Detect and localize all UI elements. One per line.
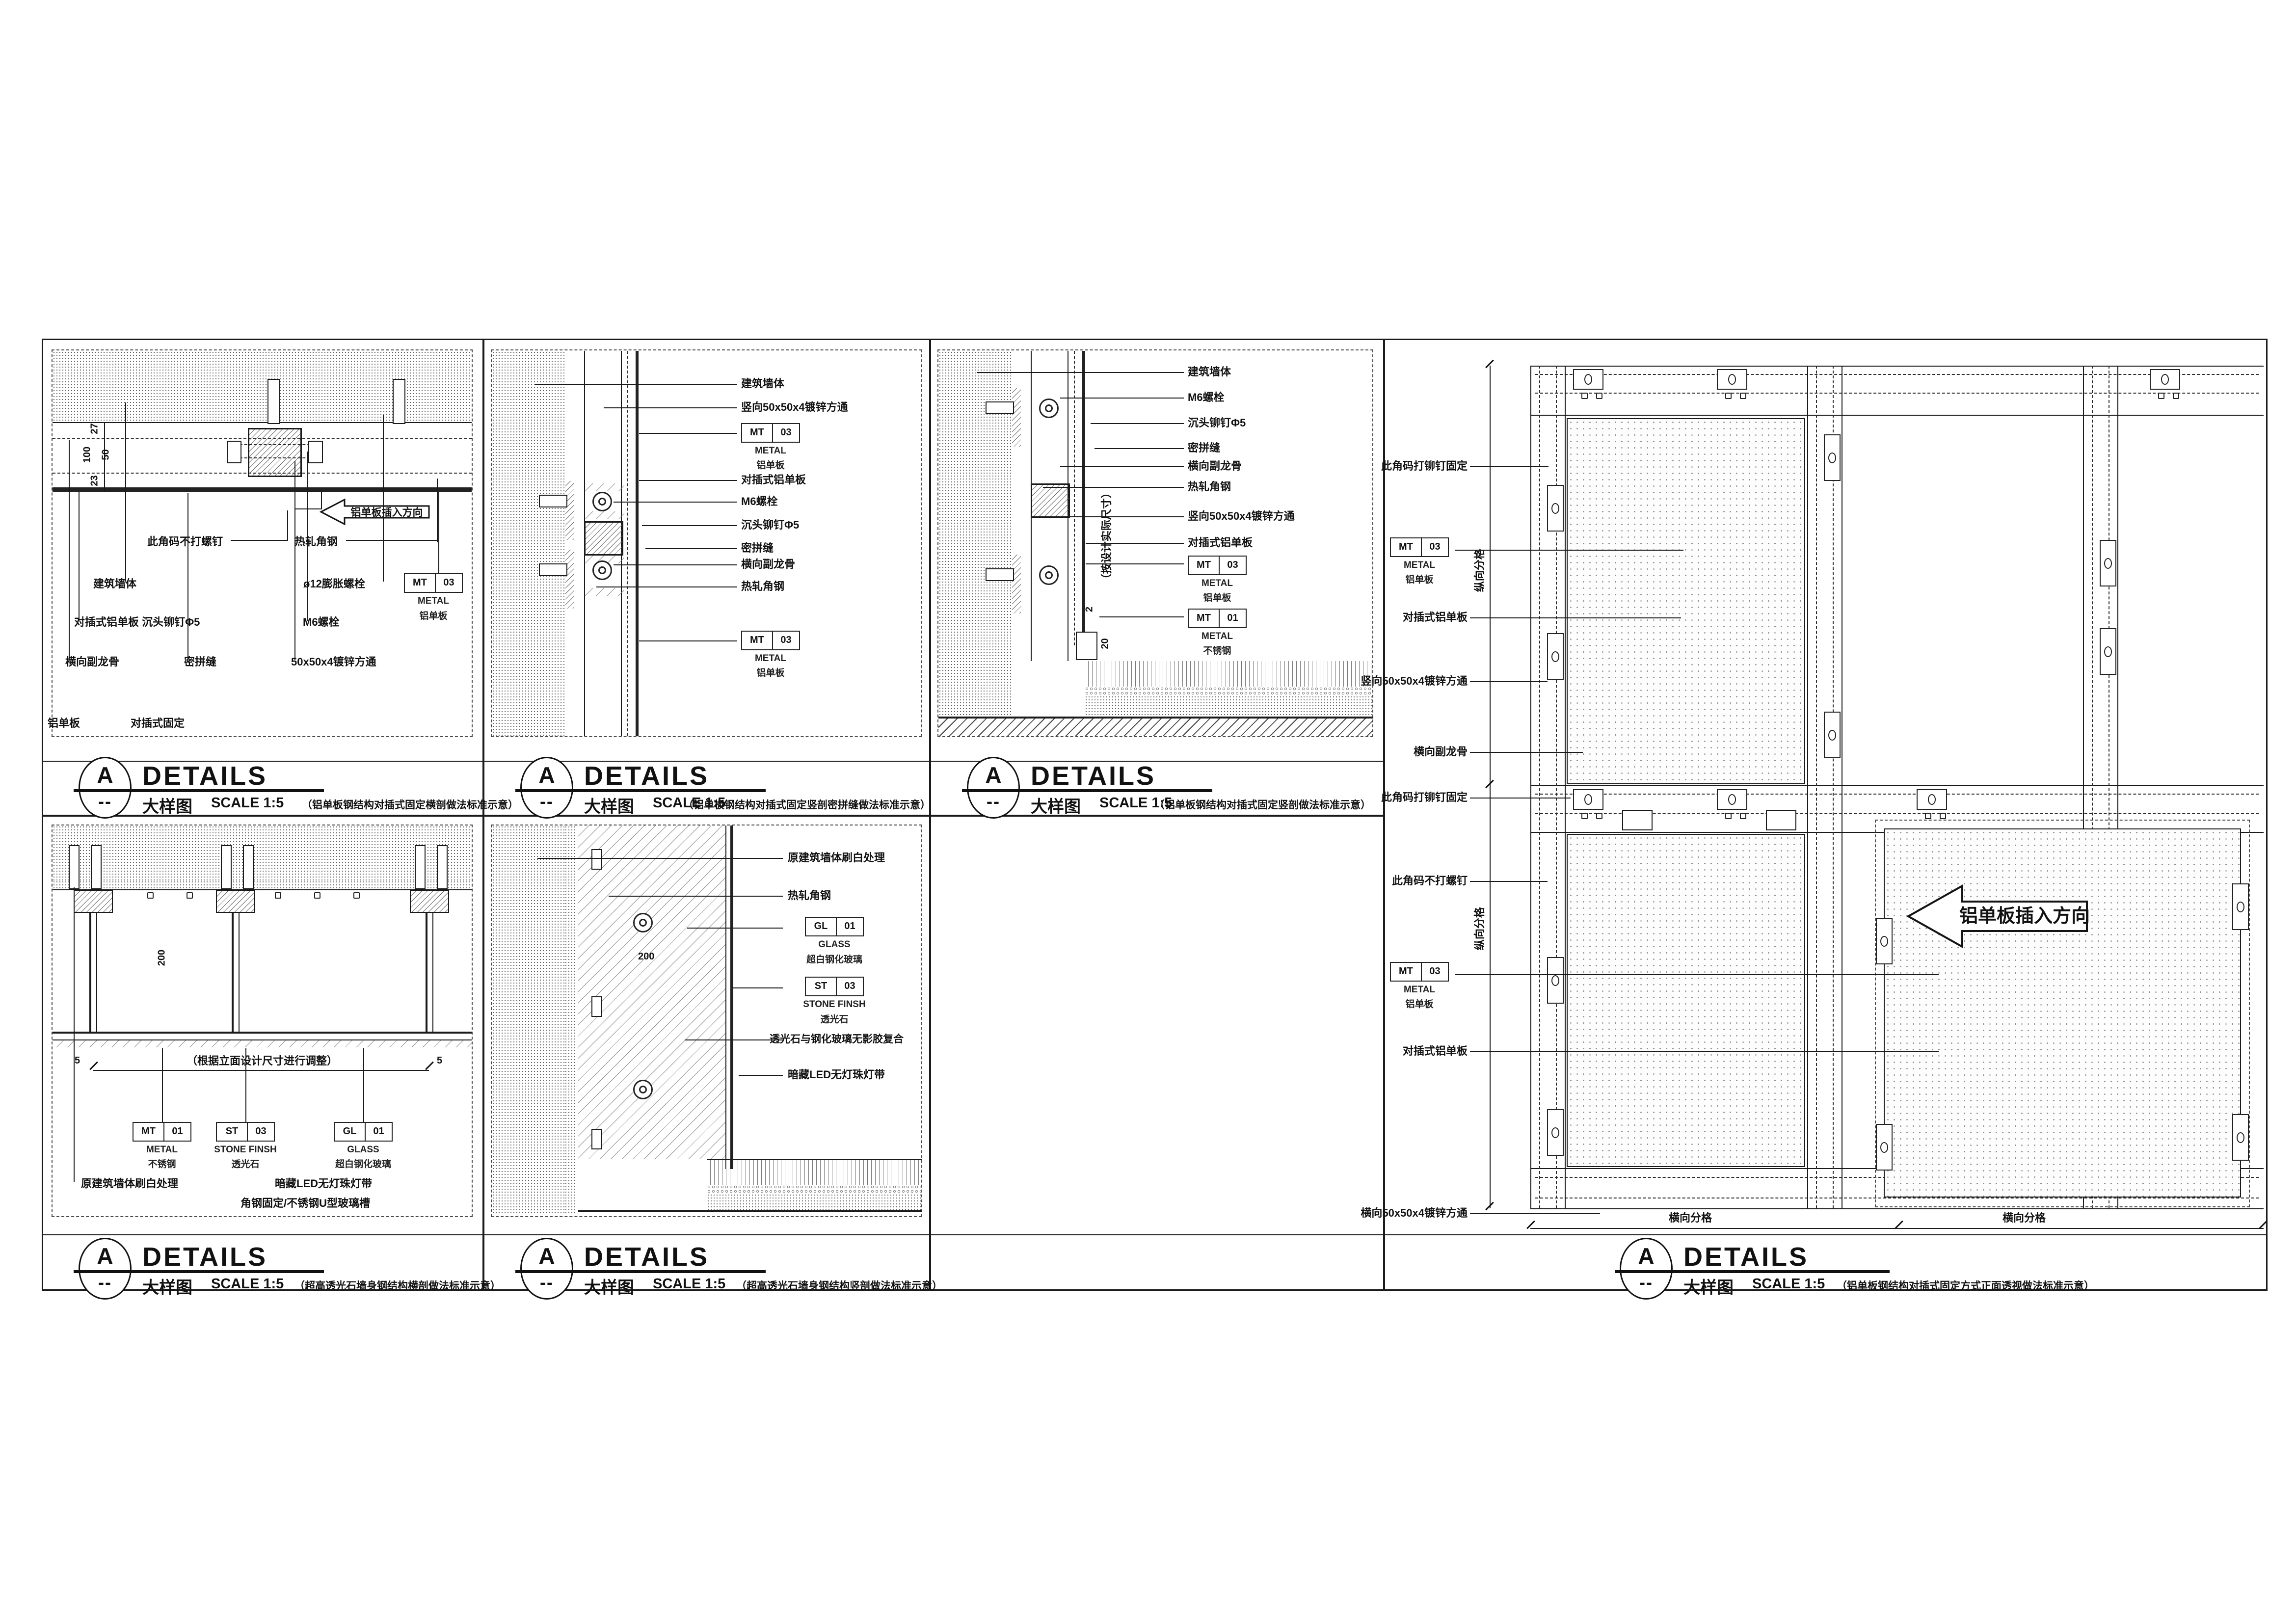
rivet-ring (1551, 975, 1559, 986)
label: 此角码打铆钉固定 (1381, 792, 1468, 803)
girt-line (1530, 366, 2264, 367)
title-details: DETAILS (584, 761, 709, 791)
label: 对插式铝单板 (1188, 537, 1253, 549)
tag-material: METAL (1365, 560, 1473, 571)
rivet-ring (1551, 503, 1559, 514)
anchor-bolt (539, 563, 567, 576)
label: 密拼缝 (1188, 442, 1220, 454)
tag-material-cn: 铝单板 (1163, 590, 1271, 604)
label: 透光石与钢化玻璃无影胶复合 (770, 1034, 904, 1045)
label: 对插式铝单板 (741, 474, 806, 486)
leader-line (639, 640, 737, 641)
tag-material: METAL (717, 446, 825, 456)
screw-head (1725, 813, 1732, 819)
leader-line (609, 896, 783, 897)
glass-fin (426, 913, 427, 1033)
leader-line (1043, 487, 1184, 488)
leader-line (537, 858, 783, 859)
leader-line (79, 492, 80, 621)
leader-line (187, 493, 188, 660)
dim-200: 200 (157, 943, 168, 973)
stone-face (53, 1032, 472, 1034)
tag-number: 03 (837, 978, 863, 995)
tag-code: MT (405, 574, 436, 592)
screw-head (1940, 813, 1946, 819)
title-view: 大样图 (584, 1274, 634, 1298)
tag-number: 01 (164, 1123, 190, 1141)
tag-material: GLASS (309, 1145, 417, 1155)
leader-line (685, 1039, 783, 1040)
tag-material: METAL (1163, 578, 1271, 589)
detail-letter: A (1620, 1243, 1673, 1269)
leader-line (74, 887, 75, 1182)
screw-head (2173, 393, 2179, 399)
clip-fixing (2150, 369, 2180, 390)
label: 横向副龙骨 (741, 559, 795, 570)
bolt-ring (598, 566, 606, 574)
bolt-symbol (633, 913, 653, 932)
line (53, 422, 472, 423)
steel-tube-section (1031, 483, 1070, 518)
rivet-ring (1828, 730, 1836, 741)
bolt-ring (1045, 571, 1053, 579)
leader-line (231, 540, 287, 541)
tag-number: 03 (773, 424, 799, 442)
leader-line (1470, 1051, 1939, 1052)
tag-number: 01 (1220, 610, 1246, 627)
material-tag: MT03 (741, 631, 800, 650)
leader-line (596, 586, 737, 587)
leader-line (69, 440, 70, 661)
label: 横向50x50x4镀锌方通 (1361, 1207, 1468, 1219)
title-details: DETAILS (584, 1242, 709, 1272)
leader-line (645, 548, 737, 549)
bracket-plate (1012, 555, 1021, 613)
clip-fixing (1917, 789, 1947, 810)
tag-code: GL (335, 1123, 366, 1141)
floor-stone-band (707, 1159, 922, 1185)
detail-number: -- (1620, 1272, 1673, 1293)
tag-code: ST (806, 978, 837, 995)
steel-tube-section (248, 428, 302, 477)
girt-line (1530, 785, 2264, 786)
tag-material-cn: 铝单板 (717, 458, 825, 471)
tag-number: 03 (1220, 557, 1246, 574)
leader-line (1470, 617, 1681, 618)
title-scale: SCALE 1:5 (211, 1276, 284, 1292)
leader-line (642, 525, 737, 526)
screw-head (2158, 393, 2164, 399)
label: 热轧角钢 (294, 536, 338, 548)
detail-letter: A (79, 762, 132, 788)
mullion-dash (1539, 366, 1540, 1208)
leader-line (438, 492, 439, 573)
label: 竖向50x50x4镀锌方通 (741, 401, 848, 413)
dim-27: 27 (89, 417, 101, 441)
tag-code: MT (742, 632, 773, 649)
slab-top (578, 1210, 922, 1212)
angle-bracket (410, 890, 449, 913)
rivet-ring (1584, 374, 1592, 385)
tag-material-cn: 不锈钢 (1163, 643, 1271, 657)
aluminum-panel-face (53, 487, 472, 492)
mullion-line (1530, 366, 1531, 1208)
leader-line (732, 987, 783, 988)
screw-head (1740, 393, 1746, 399)
label: 对插式铝单板 沉头铆钉Φ5 (74, 616, 200, 628)
leader-line (363, 1048, 364, 1122)
tag-material: STONE FINSH (191, 1145, 299, 1155)
label: 此角码不打螺钉 (147, 536, 223, 548)
clip-fixing (1717, 369, 1747, 390)
leader-line (1455, 974, 1939, 975)
steel-tube-section (584, 521, 623, 556)
leader-line (437, 479, 438, 542)
tag-material-cn: 透光石 (191, 1157, 299, 1170)
title-note: （铝单板钢结构对插式固定横剖做法标准示意） (302, 797, 518, 812)
detail-number: -- (79, 1272, 132, 1293)
girt-line (1530, 1208, 2264, 1209)
line (1074, 351, 1075, 645)
girt-dash (1535, 393, 2259, 394)
dim-label: 纵向分格 (1474, 533, 1486, 607)
clip-fixing (2100, 628, 2116, 675)
aluminum-panel-face (1082, 351, 1085, 632)
tag-material: METAL (717, 653, 825, 664)
mullion-line (1807, 366, 1808, 1208)
material-tag: MT03 (1188, 556, 1247, 575)
angle-fixing (591, 996, 602, 1017)
label: 暗藏LED无灯珠灯带 (788, 1069, 885, 1081)
tag-code: MT (133, 1123, 164, 1141)
m6-bolt-symbol (592, 492, 612, 511)
label: 角钢固定/不锈钢U型玻璃槽 (240, 1198, 370, 1209)
wall-hatch (53, 825, 472, 880)
row-divider (42, 815, 1385, 817)
clip-fixing (1824, 434, 1841, 481)
leader-line (1470, 466, 1548, 467)
bracket-plate (1012, 388, 1021, 447)
clip-fixing (1573, 369, 1603, 390)
render-band (564, 825, 577, 1213)
floor-mortar-band (1085, 687, 1373, 695)
title-note: （铝单板钢结构对插式固定方式正面透视做法标准示意） (1837, 1278, 2094, 1293)
material-tag: MT03 (741, 423, 800, 443)
material-tag: MT03 (1390, 962, 1449, 982)
label: 对插式铝单板 (1403, 1045, 1468, 1057)
dim-2: 2 (1084, 600, 1095, 619)
clip-fixing (1547, 485, 1564, 532)
dim-5: 5 (75, 1055, 80, 1066)
title-view: 大样图 (1031, 793, 1081, 817)
screw-head (1581, 813, 1588, 819)
leader-line (739, 1075, 783, 1076)
insert-direction-arrow: 铝单板插入方向 (1904, 881, 2091, 952)
screw-head (275, 892, 281, 899)
label: 热轧角钢 (741, 581, 784, 592)
floor-mortar-band (707, 1185, 922, 1194)
label: 横向副龙骨 (1414, 746, 1468, 758)
tag-material-cn: 铝单板 (1365, 572, 1473, 586)
girt-line (1530, 415, 2264, 416)
tag-material-cn: 超白钢化玻璃 (780, 952, 888, 965)
clip-fixing (1547, 1109, 1564, 1156)
tag-number: 01 (366, 1123, 392, 1141)
dim-line (1530, 1228, 2264, 1229)
tag-material: METAL (1163, 631, 1271, 642)
leader-line (287, 510, 288, 541)
label: M6螺栓 (741, 496, 778, 507)
angle-fixing (591, 849, 602, 870)
bolt-axis (230, 444, 320, 445)
bracket-plate (565, 550, 574, 609)
mullion-dash (1816, 366, 1817, 1208)
label: 对插式铝单板 (1403, 612, 1468, 623)
title-details: DETAILS (142, 1242, 267, 1272)
label: 横向副龙骨 (65, 656, 119, 668)
angle-bracket (74, 890, 113, 913)
tag-number: 03 (248, 1123, 274, 1141)
rivet-ring (1880, 1142, 1888, 1153)
screw-head (314, 892, 320, 899)
tag-material-cn: 铝单板 (717, 666, 825, 679)
leader-line (977, 372, 1184, 373)
title-details: DETAILS (1031, 761, 1156, 791)
rivet-ring (2237, 902, 2244, 912)
title-details: DETAILS (1683, 1242, 1809, 1272)
label: 对插式固定 (131, 718, 185, 729)
leader-line (639, 480, 737, 481)
glass-fin (89, 913, 91, 1033)
detail-letter: A (520, 1243, 573, 1269)
tag-material-cn: 铝单板 (1365, 997, 1473, 1010)
title-scale: SCALE 1:5 (211, 795, 284, 811)
bolt-nut (227, 441, 241, 463)
leader-line (1060, 398, 1184, 399)
clip-fixing (1547, 633, 1564, 680)
rivet-ring (2161, 374, 2169, 385)
label: 横向副龙骨 (1188, 460, 1242, 472)
rivet-ring (1880, 936, 1888, 947)
leader-line (1095, 448, 1184, 449)
screw-head (187, 892, 193, 899)
detail-number: -- (520, 791, 573, 812)
leader-line (162, 1048, 163, 1122)
label: 此角码不打螺钉 (1392, 875, 1468, 887)
material-tag: ST03 (216, 1122, 275, 1142)
screw-head (147, 892, 154, 899)
tag-code: MT (1391, 963, 1422, 981)
clip-fixing (1717, 789, 1747, 810)
tag-code: MT (1391, 538, 1422, 556)
rivet-ring (1584, 794, 1592, 805)
anchor-bolt (69, 845, 80, 889)
rivet-ring (1728, 794, 1736, 805)
clip-fixing (2232, 883, 2249, 930)
glass-fin (432, 913, 433, 1033)
label: 原建筑墙体刷白处理 (788, 852, 885, 864)
angle-fixing (591, 1129, 602, 1149)
label: 建筑墙体 (741, 378, 784, 390)
title-view: 大样图 (1683, 1274, 1734, 1298)
clip-fixing (2100, 540, 2116, 586)
screw-head (1581, 393, 1588, 399)
title-note: （超高透光石墙身钢结构竖剖做法标准示意） (736, 1278, 942, 1293)
bracket-plate (565, 481, 574, 540)
leader-line (1470, 752, 1583, 753)
leader-line (245, 1048, 246, 1122)
insert-direction-arrow: 铝单板插入方向 (319, 498, 431, 526)
detail-number: -- (967, 791, 1020, 812)
leader-line (294, 461, 295, 660)
screw-head (1725, 393, 1732, 399)
rivet-ring (2104, 646, 2112, 657)
mullion-line (1565, 366, 1566, 1208)
wall-hatch (53, 351, 472, 422)
rivet-ring (1728, 374, 1736, 385)
floor-screed-band (707, 1194, 922, 1210)
label: 竖向50x50x4镀锌方通 (1361, 675, 1468, 687)
label: 建筑墙体 (93, 578, 136, 590)
tag-material: GLASS (780, 939, 888, 950)
tag-material-cn: 铝单板 (379, 609, 487, 622)
label: 竖向50x50x4镀锌方通 (1188, 510, 1295, 522)
tag-material: METAL (1365, 985, 1473, 995)
anchor-bolt (415, 845, 426, 889)
anchor-bolt (986, 568, 1014, 581)
aluminum-panel-face (636, 351, 639, 736)
anchor-bolt (437, 845, 448, 889)
weld-cap (582, 588, 624, 596)
angle-bracket (216, 890, 255, 913)
anchor-bolt (986, 401, 1014, 414)
material-tag: GL01 (334, 1122, 393, 1142)
tag-material-cn: 透光石 (780, 1012, 888, 1025)
glass-line (725, 825, 726, 1169)
label: 沉头铆钉Φ5 (741, 519, 799, 531)
leader-line (125, 402, 126, 582)
material-tag: MT01 (133, 1122, 191, 1142)
clip-fixing (1876, 918, 1893, 964)
tag-code: MT (1189, 610, 1220, 627)
label: 密拼缝 (184, 656, 216, 668)
dim-23: 23 (89, 469, 101, 493)
screw-head (1596, 393, 1602, 399)
label: 此角码打铆钉固定 (1381, 460, 1468, 472)
title-note: （超高透光石墙身钢结构横剖做法标准示意） (294, 1278, 501, 1293)
tag-code: GL (806, 918, 837, 935)
drawing-sheet: 27 100 50 23 铝单板插入方向 此角码不打螺钉 热轧角钢 建筑墙体 ø… (0, 0, 2296, 1624)
label: 沉头铆钉Φ5 (1188, 417, 1246, 429)
line (627, 351, 628, 736)
material-tag: ST03 (805, 977, 864, 996)
title-note: （铝单板钢结构对插式固定竖剖密拼缝做法标准示意） (683, 797, 931, 812)
title-note: （铝单板钢结构对插式固定竖剖做法标准示意） (1154, 797, 1371, 812)
mullion-dash (1833, 366, 1834, 1208)
svg-text:铝单板插入方向: 铝单板插入方向 (351, 506, 423, 518)
title-scale: SCALE 1:5 (653, 1276, 725, 1292)
leader-line (639, 433, 737, 434)
leader-line (1086, 543, 1184, 544)
leader-line (1050, 516, 1184, 517)
rivet-ring (1551, 1127, 1559, 1138)
dim-line (93, 1070, 429, 1071)
tag-number: 01 (837, 918, 863, 935)
m6-bolt-symbol (592, 560, 612, 580)
leader-line (687, 928, 783, 929)
stone-hatch (53, 1040, 472, 1047)
clip-fixing (1824, 712, 1841, 758)
detail-letter: A (79, 1243, 132, 1269)
girt-dash (1535, 794, 2259, 795)
leader-line (1470, 881, 1548, 882)
aluminum-panel-elevation (1567, 418, 1805, 784)
aluminum-panel-elevation (1567, 834, 1805, 1167)
dim-20: 20 (1100, 634, 1111, 654)
leader-line (1470, 681, 1548, 682)
mullion-line (1842, 366, 1842, 1208)
detail-number: -- (79, 791, 132, 812)
leader-line (1086, 563, 1184, 564)
wall-hatch (492, 351, 564, 736)
leader-line (383, 415, 384, 582)
tag-number: 03 (773, 632, 799, 649)
weld-cap (582, 483, 624, 491)
clip-fixing (1573, 789, 1603, 810)
dim-label: 横向分格 (2002, 1212, 2046, 1224)
label: 建筑墙体 (1188, 366, 1231, 378)
bolt-ring (598, 498, 606, 506)
weld-cap (582, 511, 624, 519)
detail-letter: A (520, 762, 573, 788)
bolt-symbol (633, 1080, 653, 1099)
title-view: 大样图 (142, 1274, 192, 1298)
leader-line (604, 407, 737, 408)
bolt-ring (639, 1086, 647, 1093)
dim-label: 横向分格 (1669, 1212, 1712, 1224)
floor-top (707, 1159, 922, 1160)
anchor-bolt (267, 379, 280, 424)
rivet-ring (2237, 1132, 2244, 1143)
screw-head (1925, 813, 1931, 819)
label: 暗藏LED无灯珠灯带 (275, 1178, 372, 1190)
tag-code: MT (1189, 557, 1220, 574)
clip-plate (1622, 810, 1653, 830)
dim-50: 50 (101, 440, 112, 470)
dim-200: 200 (638, 951, 654, 962)
leader-line (535, 384, 737, 385)
label: 密拼缝 (741, 542, 774, 554)
clip-fixing (1876, 1124, 1893, 1171)
rivet-ring (1828, 453, 1836, 463)
bolt-ring (639, 919, 647, 927)
rivet-ring (2104, 558, 2112, 569)
tag-number: 03 (1422, 538, 1448, 556)
tag-material-cn: 超白钢化玻璃 (309, 1157, 417, 1170)
leader-line (1091, 423, 1184, 424)
rivet-ring (1551, 651, 1559, 662)
leader-line (614, 564, 737, 565)
svg-text:铝单板插入方向: 铝单板插入方向 (1959, 906, 2090, 927)
tag-material: STONE FINSH (780, 999, 888, 1010)
clip-detail (294, 491, 322, 509)
glass-fin (232, 913, 234, 1033)
line (53, 889, 472, 890)
tag-number: 03 (436, 574, 462, 592)
bolt-ring (1045, 404, 1053, 412)
title-details: DETAILS (142, 761, 267, 791)
label: M6螺栓 (1188, 392, 1225, 403)
